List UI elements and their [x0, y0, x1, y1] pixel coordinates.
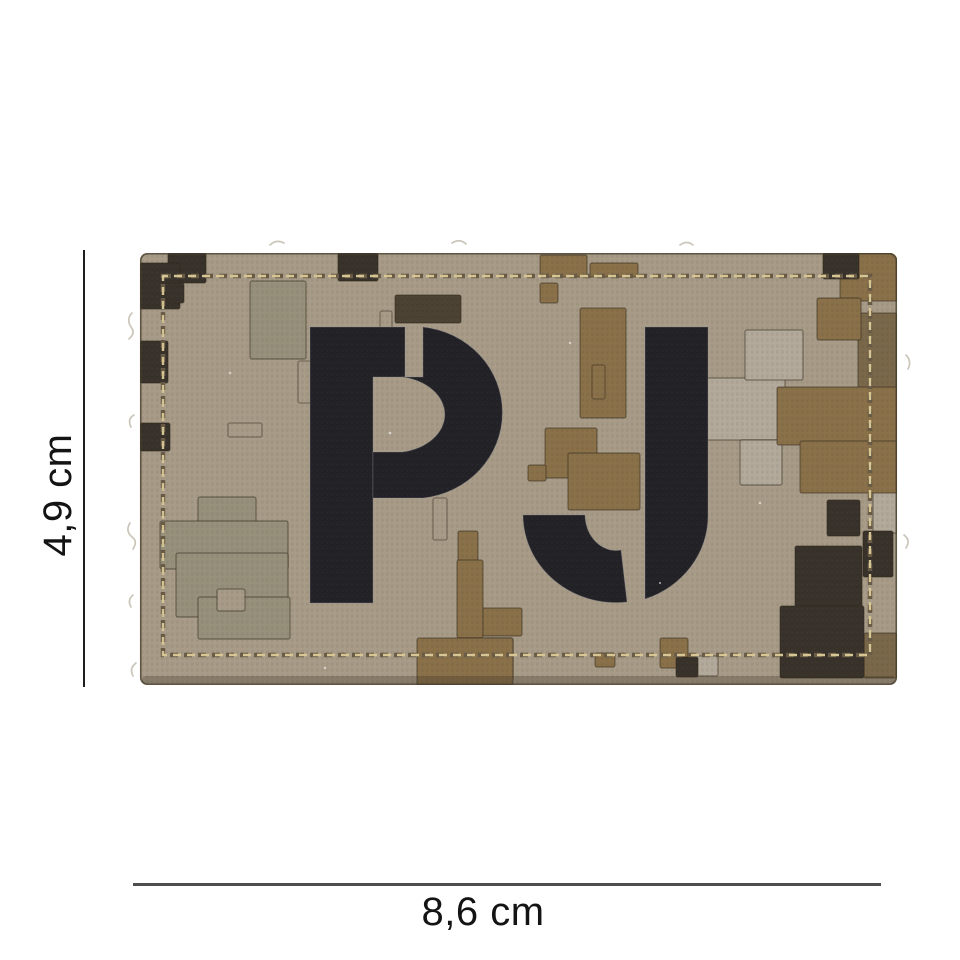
camo-patch	[120, 233, 917, 705]
width-dimension-label: 8,6 cm	[133, 889, 833, 935]
width-dimension-line	[133, 883, 881, 886]
height-dimension-line	[83, 250, 85, 687]
product-photo: 4,9 cm 8,6 cm	[0, 0, 960, 960]
patch-edge-shade	[142, 676, 895, 684]
height-dimension-label: 4,9 cm	[36, 385, 80, 605]
patch-body	[140, 253, 897, 685]
fabric-texture	[140, 253, 897, 685]
